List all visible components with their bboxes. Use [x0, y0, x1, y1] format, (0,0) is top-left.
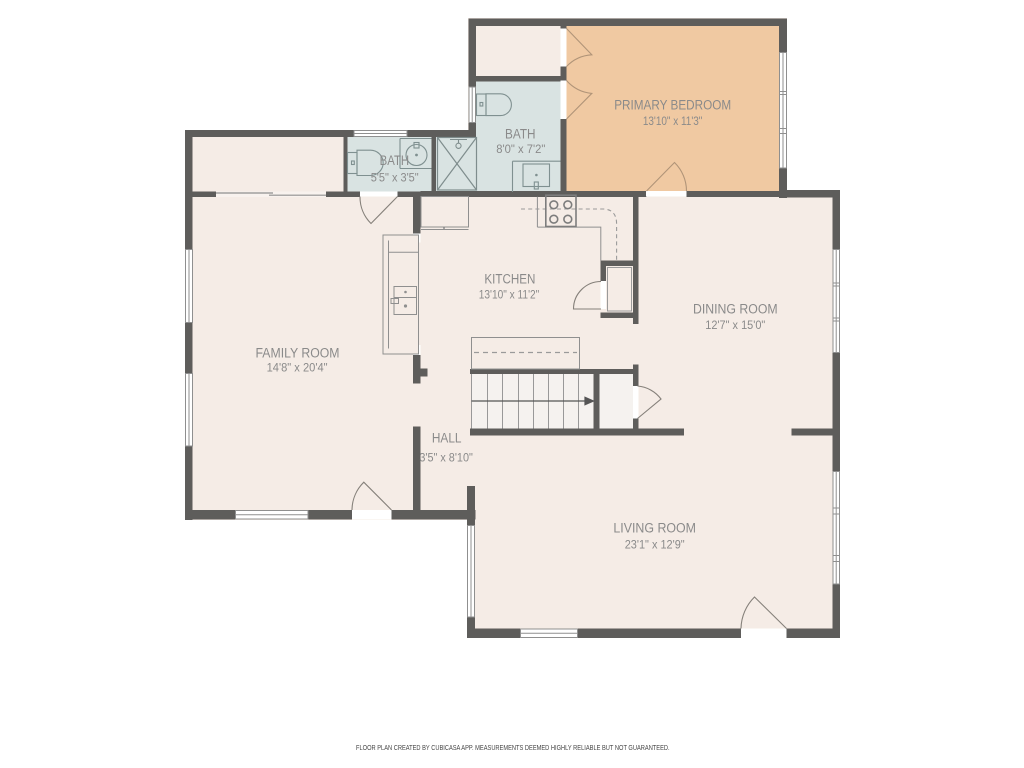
svg-text:13'10" x 11'2": 13'10" x 11'2": [479, 290, 540, 302]
svg-text:23'1" x 12'9": 23'1" x 12'9": [625, 540, 685, 552]
svg-text:13'10" x 11'3": 13'10" x 11'3": [643, 116, 703, 128]
svg-text:FAMILY ROOM: FAMILY ROOM: [256, 346, 340, 361]
svg-text:BATH: BATH: [505, 126, 536, 141]
svg-text:BATH: BATH: [380, 153, 410, 168]
svg-text:LIVING ROOM: LIVING ROOM: [613, 521, 696, 536]
svg-text:DINING ROOM: DINING ROOM: [693, 302, 778, 317]
svg-text:HALL: HALL: [432, 430, 462, 445]
svg-text:8'0" x 7'2": 8'0" x 7'2": [496, 144, 545, 156]
svg-text:FLOOR PLAN CREATED BY CUBICASA: FLOOR PLAN CREATED BY CUBICASA APP. MEAS…: [356, 743, 670, 752]
svg-text:5'5" x 3'5": 5'5" x 3'5": [371, 173, 419, 185]
svg-text:3'5" x 8'10": 3'5" x 8'10": [419, 453, 473, 465]
svg-text:PRIMARY BEDROOM: PRIMARY BEDROOM: [614, 97, 731, 112]
svg-text:14'8" x 20'4": 14'8" x 20'4": [267, 363, 328, 375]
svg-text:KITCHEN: KITCHEN: [484, 272, 535, 287]
svg-text:12'7" x 15'0": 12'7" x 15'0": [705, 320, 765, 332]
